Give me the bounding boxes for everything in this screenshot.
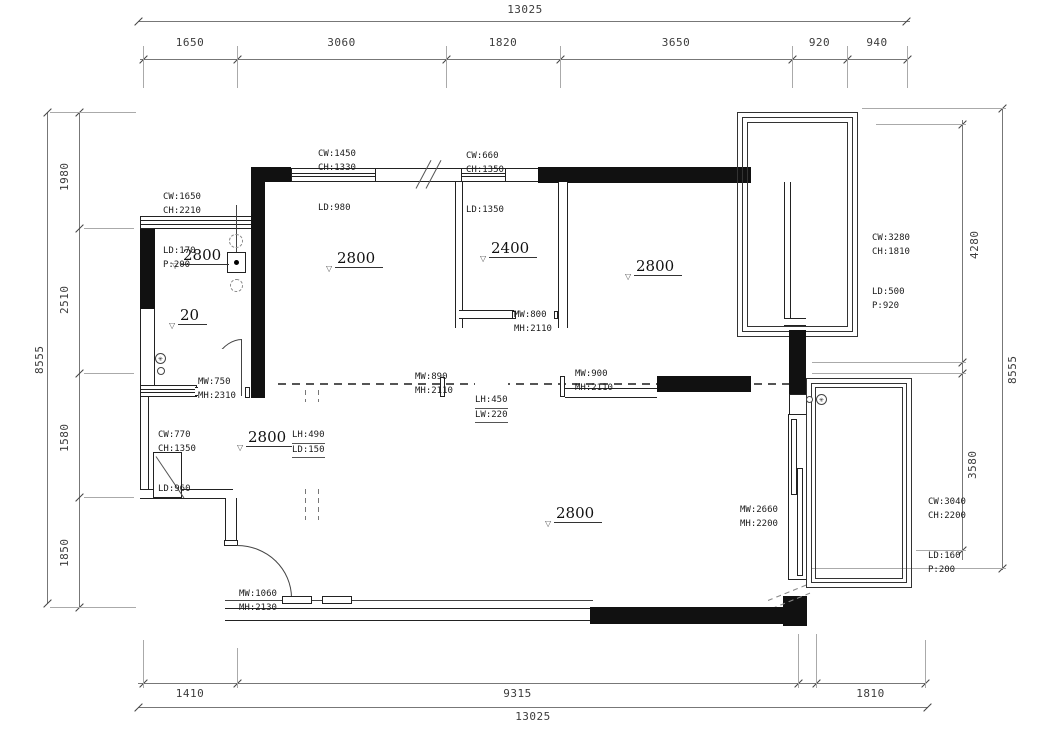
balcony-frame [747, 122, 848, 327]
floor-line [225, 600, 593, 601]
wall-segment [140, 397, 149, 498]
wall-segment [251, 167, 291, 182]
extension-line [560, 46, 561, 88]
door-jamb [245, 387, 250, 398]
level-marker-icon: ▽ [545, 519, 551, 528]
dim-left-seg: 1580 [58, 385, 74, 491]
level-marker-icon: ▽ [169, 321, 175, 330]
wall-segment [140, 309, 155, 386]
door-jamb [224, 540, 238, 546]
wall-segment [455, 182, 463, 328]
dim-left-seg: 1980 [58, 125, 74, 229]
entry-fixture [322, 596, 352, 604]
balcony-frame [815, 387, 903, 579]
room-label-bedroom-right: ▽2800 [634, 257, 682, 275]
wall-segment [657, 376, 751, 392]
extension-line [237, 648, 238, 688]
wall-segment [784, 318, 806, 326]
dim-right-seg: 3580 [966, 415, 982, 515]
extension-line [862, 108, 1006, 109]
annotation-beam-left: LH:490LD:150 [292, 402, 325, 485]
dim-line [1002, 108, 1003, 570]
riser-circle [229, 234, 243, 248]
annotation-balcony-top-right: CW:3280CH:1810 LD:500P:920 [872, 205, 910, 340]
wall-segment [140, 229, 155, 311]
annotation-window-left-mid: CW:770CH:1350 LD:960 [158, 402, 196, 524]
dim-left-seg: 2510 [58, 238, 74, 362]
annotation-window-room-mid: CW:660CH:1350 LD:1350 [466, 123, 504, 245]
wall-segment [789, 394, 807, 415]
sliding-door-panel [797, 468, 803, 576]
extension-line [84, 373, 134, 374]
dim-left-total: 8555 [33, 315, 49, 405]
extension-line [816, 634, 817, 688]
floor-plan-canvas: 13025 1650 3060 1820 3650 920 940 1410 9… [0, 0, 1051, 736]
extension-line [143, 640, 144, 688]
extension-line [876, 124, 966, 125]
annotation-door-room-mid: MW:800MH:2110 [514, 282, 552, 363]
riser-circle [230, 279, 243, 292]
dim-left-seg: 1850 [58, 500, 74, 606]
extension-line [907, 46, 908, 88]
wall-segment [506, 168, 538, 182]
annotation-balcony-bottom-right: CW:3040CH:2200 LD:160P:200 [928, 469, 966, 604]
wall-segment [558, 182, 568, 328]
annotation-entry-door: MW:1060MH:2130 [239, 561, 277, 642]
room-label-left-mid: ▽2800 [246, 428, 294, 446]
exhaust-fan-icon: ✳ [816, 394, 827, 405]
dim-line [138, 683, 926, 684]
extension-line [143, 46, 144, 88]
dim-top-seg: 1650 [143, 36, 237, 49]
room-label-bedroom-left: ▽2800 [335, 249, 383, 267]
entry-fixture [282, 596, 312, 604]
level-marker-icon: ▽ [625, 272, 631, 281]
dim-bottom-seg: 1810 [816, 687, 925, 700]
annotation-window-bedroom-left: CW:1450CH:1330 LD:980 [318, 121, 356, 243]
dim-top-seg: 940 [847, 36, 907, 49]
door-jamb [554, 311, 558, 319]
wall-segment [789, 330, 806, 394]
dim-top-seg: 1820 [446, 36, 560, 49]
wall-segment [784, 182, 791, 324]
wall-segment [459, 310, 514, 319]
annotation-door-bath: MW:750MH:2310 [198, 349, 236, 430]
exhaust-fan-icon: ✳ [155, 353, 166, 364]
dim-top-seg: 3650 [560, 36, 792, 49]
level-marker-icon: ▽ [237, 443, 243, 452]
annotation-door-bedroom-right: MW:900MH:2110 [575, 341, 613, 422]
dim-top-total: 13025 [140, 3, 910, 16]
dim-right-total: 8555 [1006, 325, 1022, 415]
dim-line [79, 112, 80, 608]
annotation-window-bath: CW:1650CH:2210 LD:170P:200 [163, 164, 201, 299]
drain-icon [806, 396, 813, 403]
extension-line [50, 112, 136, 113]
annotation-sliding-door: MW:2660MH:2200 [740, 477, 778, 558]
extension-line [925, 640, 926, 688]
dim-top-seg: 920 [792, 36, 847, 49]
wall-segment [590, 607, 807, 624]
dim-top-seg: 3060 [237, 36, 446, 49]
extension-line [446, 46, 447, 88]
annotation-door-bedroom-left: MW:890MH:2110 [415, 344, 453, 425]
extension-line [812, 362, 966, 363]
level-marker-icon: ▽ [480, 254, 486, 263]
wall-segment [538, 167, 751, 183]
extension-line [847, 46, 848, 88]
extension-line [812, 373, 966, 374]
annotation-beam-mid: LH:450LW:220 [475, 367, 508, 450]
extension-line [84, 497, 134, 498]
extension-line [50, 607, 136, 608]
dim-line [138, 707, 928, 708]
dim-right-seg: 4280 [968, 195, 984, 295]
riser-dot [234, 260, 239, 265]
wall-segment [225, 498, 237, 542]
drain-icon [157, 367, 165, 375]
level-marker-icon: ▽ [326, 264, 332, 273]
dim-bottom-total: 13025 [138, 710, 928, 723]
dim-bottom-seg: 9315 [237, 687, 798, 700]
window-bath-left [140, 385, 197, 397]
dim-line [138, 21, 910, 22]
wall-segment [225, 608, 592, 621]
extension-line [792, 46, 793, 88]
dim-bottom-seg: 1410 [143, 687, 237, 700]
wall-segment [251, 167, 265, 398]
extension-line [798, 634, 799, 688]
room-label-bath-sub: ▽20 [178, 306, 207, 324]
extension-line [237, 46, 238, 88]
extension-line [84, 228, 134, 229]
room-label-living: ▽2800 [554, 504, 602, 522]
